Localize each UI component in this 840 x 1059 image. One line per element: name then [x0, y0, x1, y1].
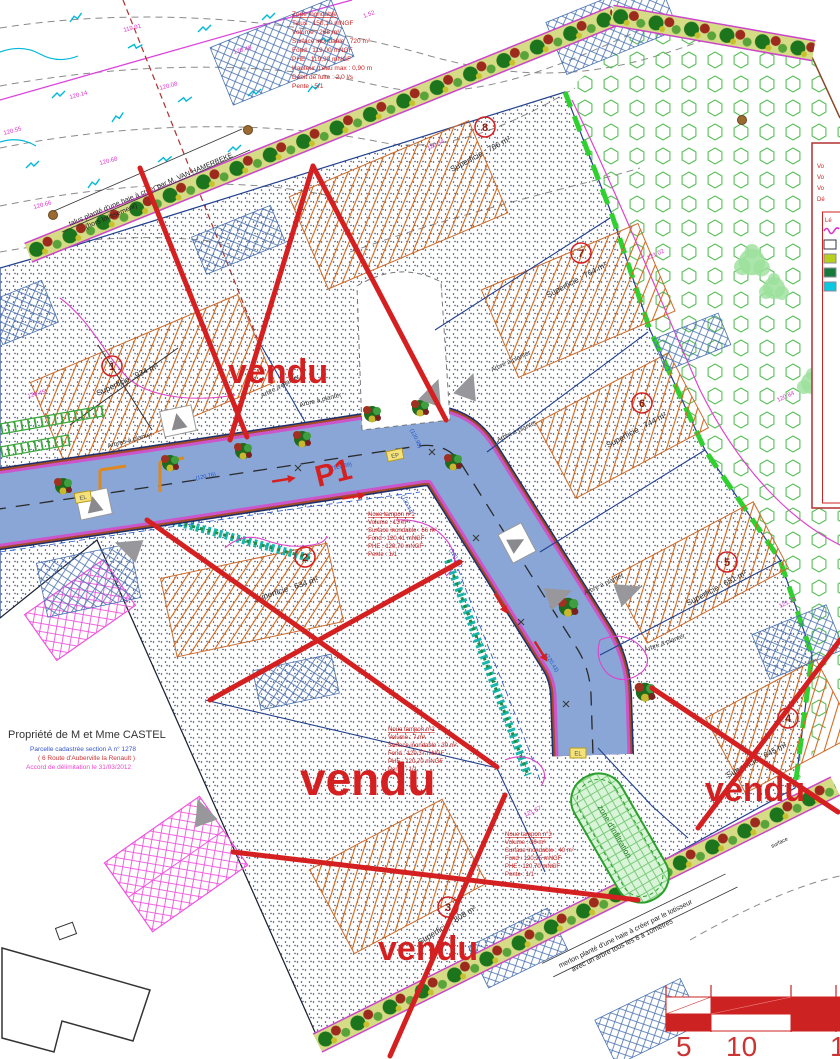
- svg-text:8: 8: [482, 122, 488, 134]
- svg-text:120.14: 120.14: [69, 90, 89, 101]
- svg-text:1: 1: [109, 361, 115, 373]
- svg-text:7: 7: [578, 248, 584, 260]
- svg-text:Volume : 13 m³: Volume : 13 m³: [368, 520, 408, 526]
- surface-label: surface: [770, 836, 789, 849]
- svg-text:120.08: 120.08: [159, 81, 179, 92]
- vendu-stamp-4: vendu: [378, 930, 478, 968]
- svg-text:120.68: 120.68: [99, 156, 119, 167]
- svg-text:PHE : 119,90 mNGF: PHE : 119,90 mNGF: [292, 56, 351, 63]
- survey-post: [738, 116, 747, 125]
- svg-text:5: 5: [724, 557, 730, 569]
- svg-text:Dé: Dé: [817, 197, 825, 203]
- site-plan-drawing: zone d'infiltration EL EP EL: [0, 0, 840, 1059]
- svg-text:Surface inondable : 30 m²: Surface inondable : 30 m²: [388, 743, 457, 749]
- utility-box: EL: [570, 748, 586, 758]
- scale-bar: 5 10 1: [666, 985, 840, 1059]
- castel-agreement: Accord de délimitation le 31/03/2012: [26, 764, 132, 771]
- utility-box: EL: [74, 491, 91, 504]
- svg-text:Noue tampon n°3: Noue tampon n°3: [505, 832, 552, 838]
- scale-number-10: 10: [726, 1031, 757, 1059]
- svg-text:120.55: 120.55: [3, 126, 23, 137]
- svg-text:Talus : 150,10 mNGF: Talus : 150,10 mNGF: [292, 20, 353, 27]
- castel-owner: Propriété de M et Mme CASTEL: [8, 729, 166, 741]
- vendu-stamp-1: vendu: [228, 353, 328, 391]
- svg-text:Volume : 30 m³: Volume : 30 m³: [505, 840, 545, 846]
- svg-text:Noue tampon n°2: Noue tampon n°2: [388, 727, 435, 733]
- flood-note-title: Zone inondable: [292, 11, 337, 18]
- vendu-stamp-3: vendu: [705, 771, 805, 809]
- svg-text:2: 2: [302, 552, 308, 564]
- svg-text:1.52: 1.52: [363, 10, 377, 20]
- svg-text:Volume : 7 m³: Volume : 7 m³: [388, 735, 425, 741]
- svg-text:Pente : 5/1: Pente : 5/1: [292, 83, 324, 90]
- legend-title: Lé: [825, 218, 832, 224]
- svg-text:3: 3: [445, 902, 451, 914]
- svg-text:119.91: 119.91: [123, 23, 142, 34]
- survey-post: [49, 211, 58, 220]
- svg-text:Vo: Vo: [817, 175, 825, 181]
- legend-panel: Vo Vo Vo Dé Lé: [812, 143, 840, 508]
- svg-text:Pente : 1/1: Pente : 1/1: [505, 872, 535, 878]
- castel-note: Propriété de M et Mme CASTEL Parcelle ca…: [8, 729, 166, 771]
- vendu-stamp-2: vendu: [300, 753, 435, 805]
- svg-text:Fond : 120,41 mNGF: Fond : 120,41 mNGF: [368, 536, 425, 542]
- bottom-hedge-label2: avec un arbre tous les 8 à 10mètres: [571, 918, 675, 973]
- svg-text:Surface inondable : 40 m²: Surface inondable : 40 m²: [505, 848, 574, 854]
- utility-box-label: EL: [574, 752, 582, 758]
- legend-swatch-darkgreen: [824, 268, 836, 277]
- svg-text:Pente : 1/1: Pente : 1/1: [368, 552, 398, 558]
- castel-address: ( 6 Route d'Auberville la Renault ): [38, 755, 135, 762]
- svg-text:Débit de fuite : 2,0 l/s: Débit de fuite : 2,0 l/s: [292, 74, 354, 81]
- flood-note: Zone inondable Talus : 150,10 mNGF Volum…: [292, 11, 372, 90]
- svg-text:120.66: 120.66: [33, 200, 53, 211]
- svg-text:PHE : 120,70 mNGF: PHE : 120,70 mNGF: [368, 544, 423, 550]
- site-plan-page: zone d'infiltration EL EP EL: [0, 0, 840, 1059]
- scale-number-15: 1: [830, 1031, 840, 1059]
- legend-swatch-cyan: [824, 282, 836, 291]
- svg-text:Fond : 119,00 mNGF: Fond : 119,00 mNGF: [292, 47, 353, 54]
- survey-post: [244, 126, 253, 135]
- svg-text:Vo: Vo: [817, 164, 825, 170]
- legend-swatch-white: [824, 240, 836, 249]
- svg-text:Volume : 268 m³: Volume : 268 m³: [292, 29, 340, 36]
- castel-parcel: Parcelle cadastrée section A n° 1278: [30, 745, 136, 753]
- svg-text:Hauteur d'eau max : 0,90 m: Hauteur d'eau max : 0,90 m: [292, 65, 372, 72]
- svg-text:Fond : 120,25 mNGF: Fond : 120,25 mNGF: [505, 856, 562, 862]
- svg-text:PHE : 120,70 mNGF: PHE : 120,70 mNGF: [505, 864, 560, 870]
- svg-text:Vo: Vo: [817, 186, 825, 192]
- svg-text:6: 6: [639, 398, 645, 410]
- scale-number-5: 5: [676, 1031, 692, 1059]
- neighbor-building-outline: [2, 948, 150, 1052]
- legend-swatch-yellowgreen: [824, 254, 836, 263]
- svg-text:Surface inondable : 720 m²: Surface inondable : 720 m²: [292, 38, 371, 45]
- svg-text:Surface inondable : 66 m²: Surface inondable : 66 m²: [368, 528, 437, 534]
